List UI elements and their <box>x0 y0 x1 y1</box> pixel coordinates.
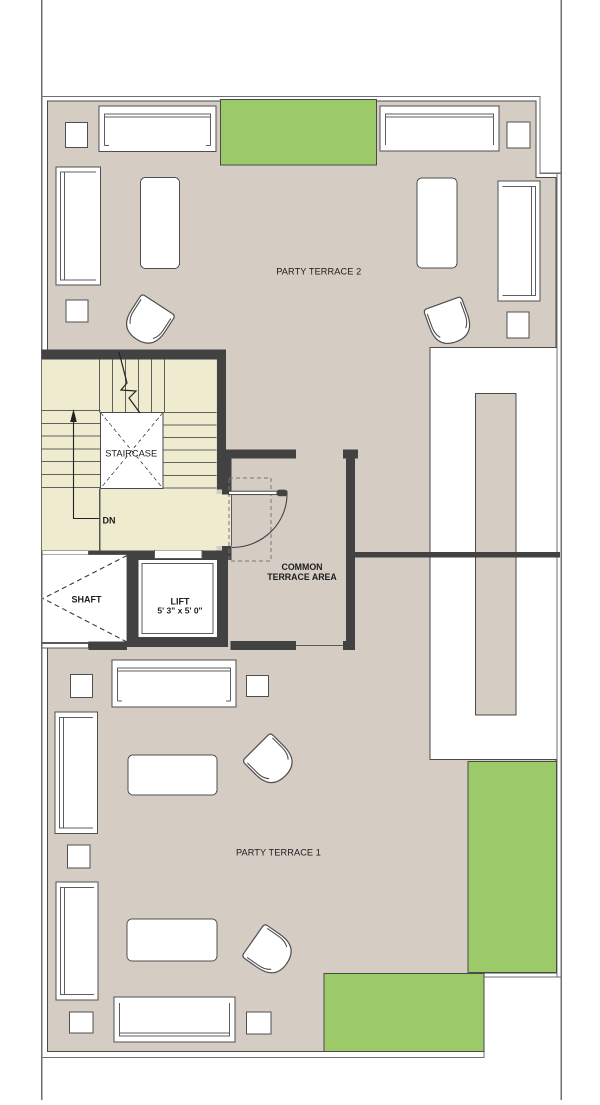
svg-text:DN: DN <box>103 516 116 526</box>
svg-text:TERRACE AREA: TERRACE AREA <box>267 572 337 582</box>
svg-text:COMMON: COMMON <box>281 562 322 572</box>
svg-text:SHAFT: SHAFT <box>72 595 102 605</box>
svg-text:PARTY TERRACE 1: PARTY TERRACE 1 <box>236 848 321 858</box>
svg-text:5' 3" x 5' 0": 5' 3" x 5' 0" <box>157 606 202 616</box>
svg-text:STAIRCASE: STAIRCASE <box>105 448 157 458</box>
svg-text:PARTY TERRACE 2: PARTY TERRACE 2 <box>276 267 361 277</box>
